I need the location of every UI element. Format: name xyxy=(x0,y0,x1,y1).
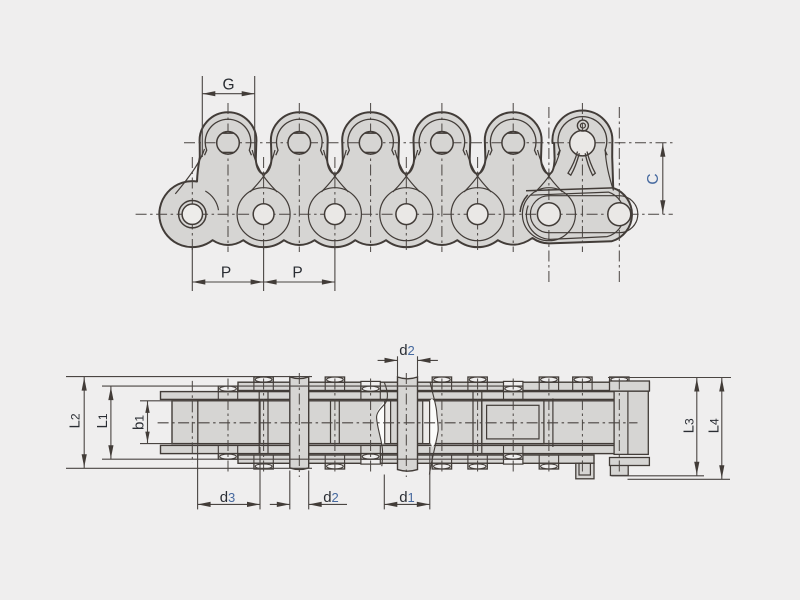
svg-text:L1: L1 xyxy=(94,413,111,428)
svg-text:d3: d3 xyxy=(220,489,236,506)
svg-text:b1: b1 xyxy=(131,415,148,430)
svg-text:L2: L2 xyxy=(66,413,83,428)
svg-text:P: P xyxy=(221,265,231,282)
svg-text:P: P xyxy=(292,265,302,282)
svg-text:d1: d1 xyxy=(399,489,415,506)
svg-text:G: G xyxy=(222,77,234,94)
svg-text:C: C xyxy=(645,173,662,184)
svg-text:L3: L3 xyxy=(681,418,698,433)
svg-text:L4: L4 xyxy=(706,418,723,433)
svg-text:d2: d2 xyxy=(399,342,415,359)
svg-text:d2: d2 xyxy=(323,489,339,506)
